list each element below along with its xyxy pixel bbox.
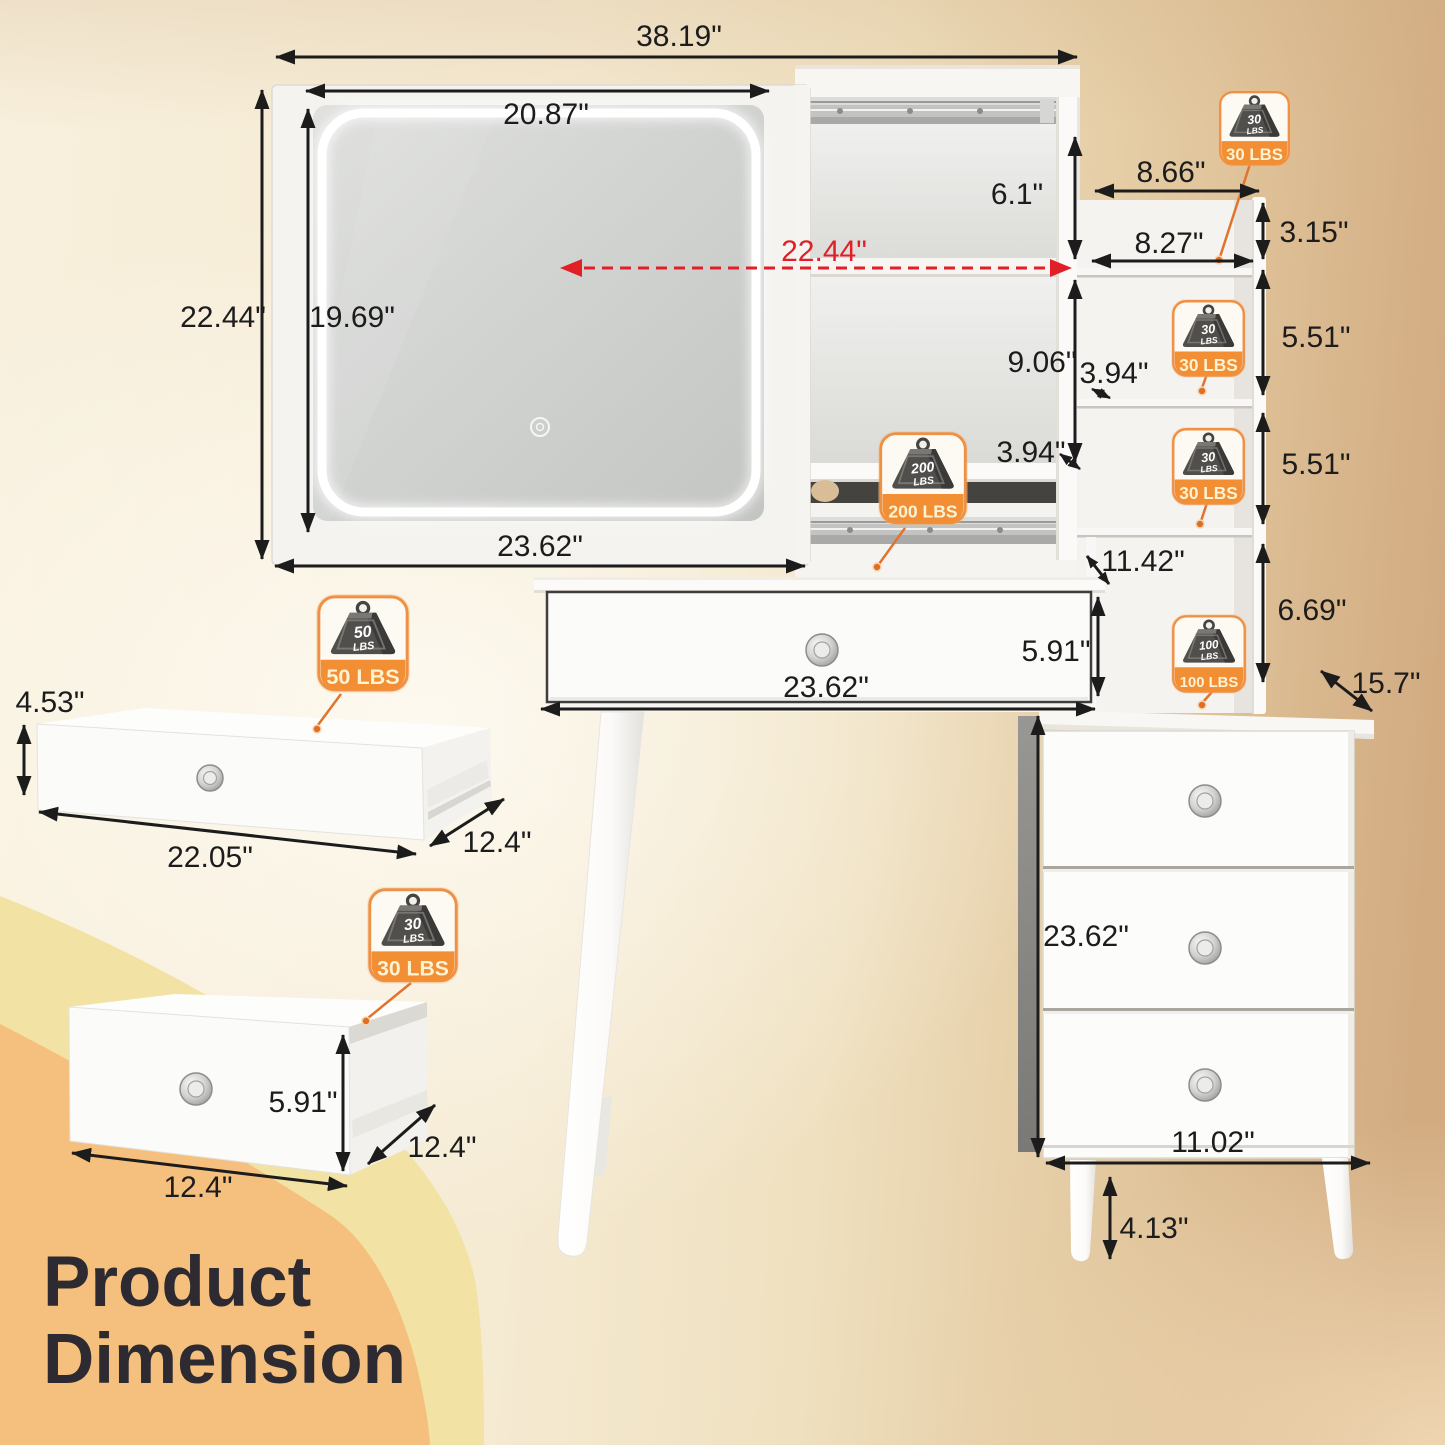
svg-text:Dimension: Dimension xyxy=(43,1320,406,1399)
svg-text:3.94": 3.94" xyxy=(1079,357,1148,390)
svg-text:22.44": 22.44" xyxy=(781,235,867,268)
svg-text:LBS: LBS xyxy=(402,932,424,946)
svg-text:12.4": 12.4" xyxy=(163,1171,232,1204)
svg-text:3.15": 3.15" xyxy=(1279,216,1348,249)
svg-text:15.7": 15.7" xyxy=(1351,667,1420,700)
svg-text:23.62": 23.62" xyxy=(1043,920,1129,953)
svg-text:200 LBS: 200 LBS xyxy=(888,501,958,521)
svg-text:22.44": 22.44" xyxy=(180,301,266,334)
svg-text:19.69": 19.69" xyxy=(309,301,395,334)
svg-text:4.13": 4.13" xyxy=(1119,1212,1188,1245)
svg-text:11.02": 11.02" xyxy=(1171,1126,1255,1159)
svg-text:8.27": 8.27" xyxy=(1134,227,1203,260)
svg-text:6.69": 6.69" xyxy=(1277,594,1346,627)
svg-text:5.91": 5.91" xyxy=(268,1086,337,1119)
svg-text:Product: Product xyxy=(43,1243,311,1322)
svg-text:5.51": 5.51" xyxy=(1281,448,1350,481)
svg-text:5.51": 5.51" xyxy=(1281,321,1350,354)
svg-text:LBS: LBS xyxy=(352,640,376,654)
svg-text:LBS: LBS xyxy=(913,475,935,488)
svg-text:LBS: LBS xyxy=(1246,125,1264,137)
svg-text:4.53": 4.53" xyxy=(15,686,84,719)
svg-text:38.19": 38.19" xyxy=(636,20,722,53)
svg-text:23.62": 23.62" xyxy=(497,530,583,563)
svg-text:LBS: LBS xyxy=(1200,650,1219,662)
svg-text:30 LBS: 30 LBS xyxy=(1226,145,1283,164)
svg-text:50 LBS: 50 LBS xyxy=(326,664,399,689)
svg-text:30 LBS: 30 LBS xyxy=(377,957,449,980)
svg-text:200: 200 xyxy=(909,458,935,476)
svg-text:6.1": 6.1" xyxy=(991,178,1043,211)
svg-text:22.05": 22.05" xyxy=(167,841,253,874)
svg-text:20.87": 20.87" xyxy=(503,98,589,131)
svg-text:23.62": 23.62" xyxy=(783,671,869,704)
svg-text:LBS: LBS xyxy=(1200,335,1218,347)
svg-text:12.4": 12.4" xyxy=(462,826,531,859)
svg-text:100 LBS: 100 LBS xyxy=(1180,675,1239,691)
svg-text:50: 50 xyxy=(353,623,373,642)
svg-text:8.66": 8.66" xyxy=(1136,156,1205,189)
svg-text:12.4": 12.4" xyxy=(407,1131,476,1164)
svg-text:LBS: LBS xyxy=(1200,463,1218,475)
svg-text:3.94": 3.94" xyxy=(996,436,1065,469)
svg-text:5.91": 5.91" xyxy=(1021,635,1090,668)
svg-text:30 LBS: 30 LBS xyxy=(1179,483,1237,503)
svg-text:11.42": 11.42" xyxy=(1101,545,1185,578)
svg-text:9.06": 9.06" xyxy=(1007,346,1076,379)
svg-text:30 LBS: 30 LBS xyxy=(1179,355,1237,375)
